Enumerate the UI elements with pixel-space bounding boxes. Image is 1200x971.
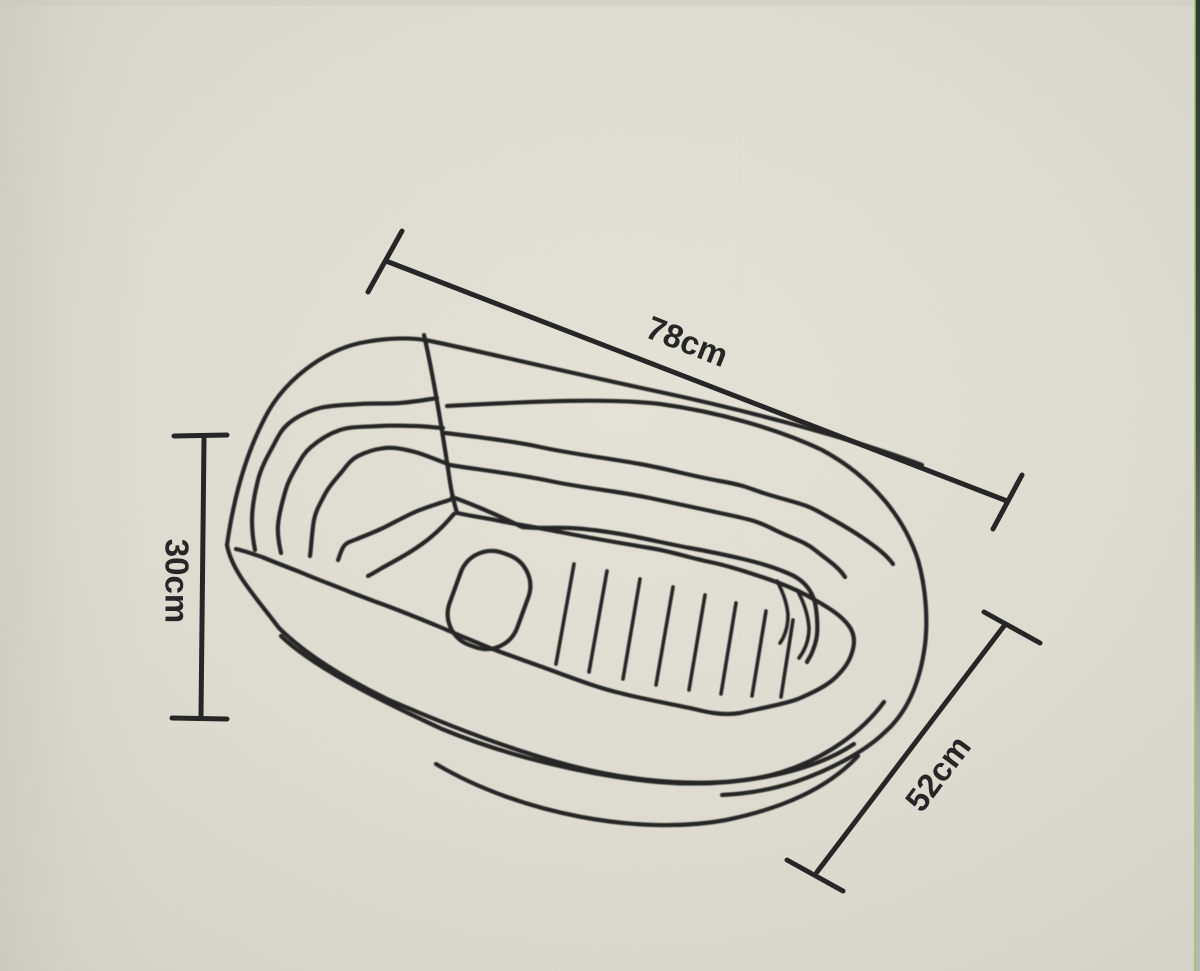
svg-text:30cm: 30cm bbox=[158, 539, 195, 623]
